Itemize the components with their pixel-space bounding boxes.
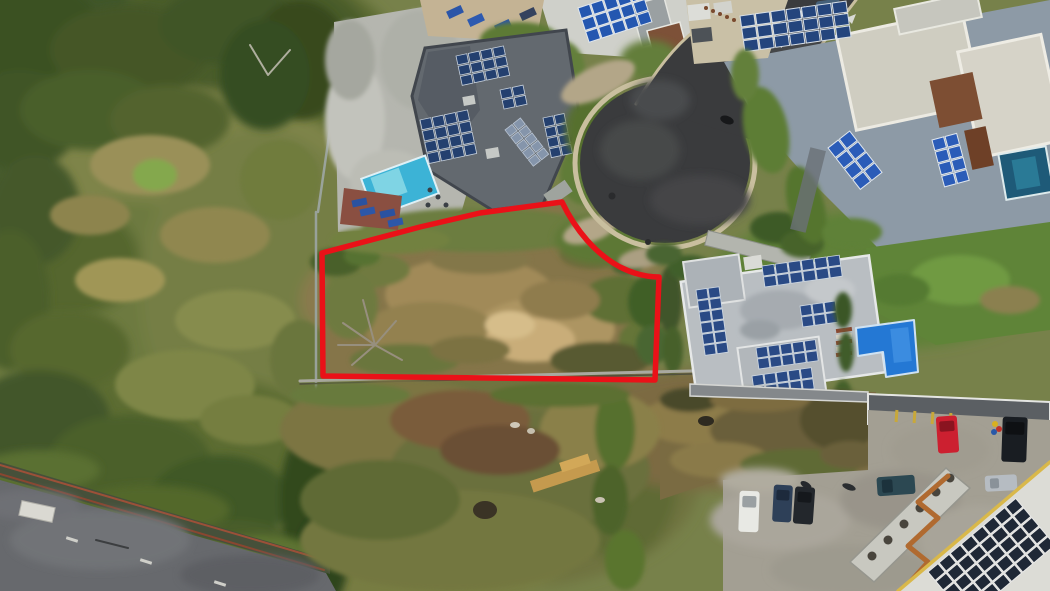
roof-vent xyxy=(743,255,763,270)
solar-panel-cell xyxy=(468,51,481,62)
car-silver xyxy=(985,474,1018,492)
shed-roof-dark xyxy=(691,27,712,43)
solar-panel-cell xyxy=(770,356,782,367)
solar-panel-cell xyxy=(820,28,835,41)
garden-lawn-blob xyxy=(330,226,450,254)
solar-panel-cell xyxy=(493,46,506,57)
southeast-dirt-texture xyxy=(640,388,880,481)
east-hedge-blob xyxy=(838,332,854,372)
solar-panel-cell xyxy=(818,16,833,29)
solar-panel-cell xyxy=(932,137,946,151)
walkway-vent xyxy=(884,536,893,545)
solar-panel-cell xyxy=(817,3,832,16)
solar-panel-cell xyxy=(800,304,812,315)
solar-panel-cell xyxy=(764,275,777,287)
solar-panel-cell xyxy=(420,118,433,130)
lot-edge-trees-blob xyxy=(636,325,668,365)
walkway-vent xyxy=(868,552,877,561)
solar-panel-cell xyxy=(512,85,525,96)
solar-panel-cell xyxy=(935,149,949,163)
asphalt-sheen-blob xyxy=(630,80,690,120)
solar-panel-cell xyxy=(716,342,728,353)
solar-panel-cell xyxy=(502,98,515,109)
fence-post xyxy=(732,18,736,22)
bottom-field-texture-blob xyxy=(605,530,645,590)
solar-panel-cell xyxy=(768,345,780,356)
solar-panel-cell xyxy=(827,255,840,267)
field-texture-blob xyxy=(75,258,165,302)
aerial-photo-canvas xyxy=(0,0,1050,591)
solar-panel-cell xyxy=(756,346,768,357)
walkway-vent xyxy=(900,520,909,529)
patio-furniture xyxy=(428,188,433,193)
fence-post xyxy=(725,15,729,19)
solar-panel-cell xyxy=(771,10,786,23)
solar-panel-cell xyxy=(942,173,956,187)
solar-panel-cell xyxy=(699,311,711,322)
solar-panel-cell xyxy=(444,113,457,125)
solar-panel-cell xyxy=(774,34,789,47)
forest-canopy-blob xyxy=(220,20,310,130)
fence-post xyxy=(718,12,722,16)
solar-panel-cell xyxy=(427,151,440,163)
solar-panel-cell xyxy=(757,24,772,37)
solar-panel-cell xyxy=(704,344,716,355)
car-teal xyxy=(876,475,915,497)
lot-dirt-texture-blob xyxy=(485,311,535,339)
aerial-photo xyxy=(0,0,1050,591)
solar-panel-cell xyxy=(801,5,816,18)
solar-panel-cell xyxy=(806,351,818,362)
solar-panel-cell xyxy=(794,352,806,363)
car-windshield xyxy=(990,478,999,488)
solar-panel-cell xyxy=(792,341,804,352)
solar-panel-cell xyxy=(460,74,473,85)
solar-panel-cell xyxy=(762,264,775,276)
solar-panel-cell xyxy=(938,161,952,175)
solar-panel-cell xyxy=(500,88,513,99)
solar-panel-cell xyxy=(714,331,726,342)
car-body xyxy=(985,474,1018,492)
solar-panel-cell xyxy=(834,13,849,26)
solar-panel-cell xyxy=(456,54,469,65)
solar-panel-cell xyxy=(803,270,816,282)
solar-panel-cell xyxy=(464,144,477,156)
solar-panel-cell xyxy=(801,259,814,271)
solar-panel-cell xyxy=(547,136,559,147)
solar-panel-cell xyxy=(554,114,566,125)
car-darkblue xyxy=(772,485,793,523)
lot-dirt-texture-blob xyxy=(430,336,510,364)
east-roof-marks-blob xyxy=(740,320,780,340)
solar-panel-cell xyxy=(948,145,962,159)
white-van xyxy=(738,491,759,533)
ne-green-strips-blob xyxy=(731,49,759,101)
solar-panel-cell xyxy=(432,115,445,127)
bottom-field-texture-blob xyxy=(490,383,630,407)
debris-white xyxy=(527,428,535,434)
debris-white xyxy=(595,497,605,503)
hedge-shrubs-blob xyxy=(646,243,682,265)
shed-roof xyxy=(713,1,732,15)
solar-panel-cell xyxy=(708,287,720,298)
solar-panel-cell xyxy=(470,61,483,72)
solar-panel-cell xyxy=(458,64,471,75)
ne-lawn-texture-blob xyxy=(870,274,930,306)
solar-panel-cell xyxy=(696,288,708,299)
solar-panel-cell xyxy=(782,354,794,365)
solar-panel-cell xyxy=(740,14,755,27)
field-texture-blob xyxy=(240,140,320,220)
manhole-cover xyxy=(645,239,651,245)
solar-panel-cell xyxy=(800,368,812,379)
solar-panel-cell xyxy=(802,316,814,327)
car-black xyxy=(793,486,816,524)
solar-panel-cell xyxy=(514,95,527,106)
solar-panel-cell xyxy=(804,340,816,351)
east-pool-light xyxy=(890,327,911,363)
solar-panel-cell xyxy=(755,12,770,25)
fence-post xyxy=(704,6,708,10)
solar-panel-cell xyxy=(832,1,847,14)
east-hedge-blob xyxy=(834,292,852,328)
solar-panel-cell xyxy=(805,30,820,43)
solar-panel-cell xyxy=(545,126,557,137)
ne-pool-step xyxy=(1012,156,1041,190)
ground-hole xyxy=(473,501,497,519)
solar-panel-cell xyxy=(752,374,764,385)
solar-panel-cell xyxy=(775,262,788,274)
bin-blue xyxy=(991,429,997,435)
ne-lawn-texture-blob xyxy=(980,286,1040,314)
solar-panel-cell xyxy=(758,358,770,369)
car-red xyxy=(936,415,960,453)
solar-panel-cell xyxy=(952,158,966,172)
solar-panel-cell xyxy=(447,124,460,136)
solar-panel-cell xyxy=(713,320,725,331)
car-windshield xyxy=(882,479,894,493)
fence-post xyxy=(711,9,715,13)
solar-panel-cell xyxy=(955,170,969,184)
car-windshield xyxy=(776,490,790,501)
bin-red xyxy=(996,426,1002,432)
solar-panel-cell xyxy=(790,32,805,45)
solar-panel-cell xyxy=(945,133,959,147)
patio-furniture xyxy=(426,203,431,208)
solar-panel-cell xyxy=(543,116,555,127)
solar-panel-cell xyxy=(449,135,462,147)
solar-panel-cell xyxy=(776,371,788,382)
field-texture-blob xyxy=(50,195,130,235)
solar-panel-cell xyxy=(711,309,723,320)
lot-dirt-texture-blob xyxy=(520,280,600,320)
solar-panel-cell xyxy=(701,322,713,333)
solar-panel-cell xyxy=(710,298,722,309)
ne-green-strips-blob xyxy=(822,218,882,246)
solar-panel-cell xyxy=(772,22,787,35)
solar-panel-cell xyxy=(437,138,450,150)
debris-mark xyxy=(698,416,714,426)
solar-panel-cell xyxy=(425,140,438,152)
solar-panel-cell xyxy=(480,49,493,60)
field-texture-blob xyxy=(160,207,270,263)
solar-panel-cell xyxy=(829,266,842,278)
manhole-cover xyxy=(609,193,616,200)
terrace-shading-blob xyxy=(325,20,375,100)
solar-panel-cell xyxy=(816,268,829,280)
solar-panel-cell xyxy=(790,272,803,284)
solar-panel-cell xyxy=(812,303,824,314)
solar-panel-cell xyxy=(836,26,851,39)
solar-panel-cell xyxy=(439,149,452,161)
solar-panel-cell xyxy=(777,274,790,286)
lot-edge-trees-blob xyxy=(663,326,683,374)
car-windshield xyxy=(797,492,812,503)
solar-panel-cell xyxy=(742,26,757,39)
patio-furniture xyxy=(436,195,441,200)
solar-panel-cell xyxy=(459,121,472,133)
bin-yellow xyxy=(992,421,998,427)
debris-white xyxy=(510,422,520,428)
car-windshield xyxy=(1005,422,1024,435)
solar-panel-cell xyxy=(814,257,827,269)
solar-panel-cell xyxy=(495,56,508,67)
solar-panel-cell xyxy=(422,129,435,141)
patio-furniture xyxy=(444,203,449,208)
solar-panel-cell xyxy=(452,146,465,158)
solar-panel-cell xyxy=(435,126,448,138)
solar-panel-cell xyxy=(483,59,496,70)
car-windshield xyxy=(939,421,955,432)
bottom-field-texture-blob xyxy=(440,425,560,475)
solar-panel-cell xyxy=(473,72,486,83)
solar-panel-cell xyxy=(788,369,800,380)
solar-panel-cell xyxy=(788,261,801,273)
bottom-field-texture-blob xyxy=(290,383,410,407)
solar-panel-cell xyxy=(698,300,710,311)
bottom-field-texture-blob xyxy=(300,460,460,540)
solar-panel-cell xyxy=(702,333,714,344)
solar-panel-cell xyxy=(457,110,470,122)
solar-panel-cell xyxy=(780,343,792,354)
solar-panel-cell xyxy=(786,8,801,21)
asphalt-sheen-blob xyxy=(650,175,750,225)
solar-panel-cell xyxy=(764,373,776,384)
solar-panel-cell xyxy=(803,18,818,31)
solar-panel-cell xyxy=(759,37,774,50)
solar-panel-cell xyxy=(814,314,826,325)
solar-panel-cell xyxy=(485,69,498,80)
suv-black xyxy=(1001,417,1028,463)
solar-panel-cell xyxy=(461,132,474,144)
car-windshield xyxy=(742,496,756,508)
field-texture-blob xyxy=(133,159,177,191)
solar-panel-cell xyxy=(550,147,562,158)
solar-panel-cell xyxy=(497,66,510,77)
shed-roof xyxy=(687,3,711,21)
asphalt-sheen-blob xyxy=(600,120,680,180)
solar-panel-cell xyxy=(788,20,803,33)
